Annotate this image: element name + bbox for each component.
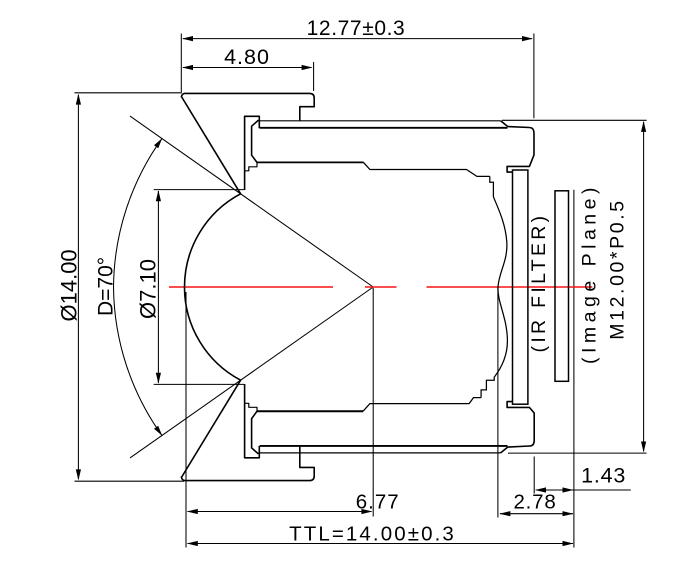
svg-text:6.77: 6.77 [356, 491, 400, 514]
svg-text:D=70°: D=70° [95, 257, 118, 316]
svg-text:M12.00*P0.5: M12.00*P0.5 [607, 198, 629, 339]
svg-text:Ø14.00: Ø14.00 [57, 249, 82, 321]
svg-text:2.78: 2.78 [513, 491, 556, 514]
svg-text:(Image Plane): (Image Plane) [579, 183, 601, 364]
svg-text:12.77±0.3: 12.77±0.3 [307, 17, 406, 40]
svg-text:1.43: 1.43 [581, 463, 626, 487]
svg-text:Ø7.10: Ø7.10 [136, 259, 161, 319]
svg-text:TTL=14.00±0.3: TTL=14.00±0.3 [289, 523, 456, 546]
svg-text:4.80: 4.80 [224, 45, 270, 69]
svg-text:(IR FILTER): (IR FILTER) [528, 213, 550, 353]
